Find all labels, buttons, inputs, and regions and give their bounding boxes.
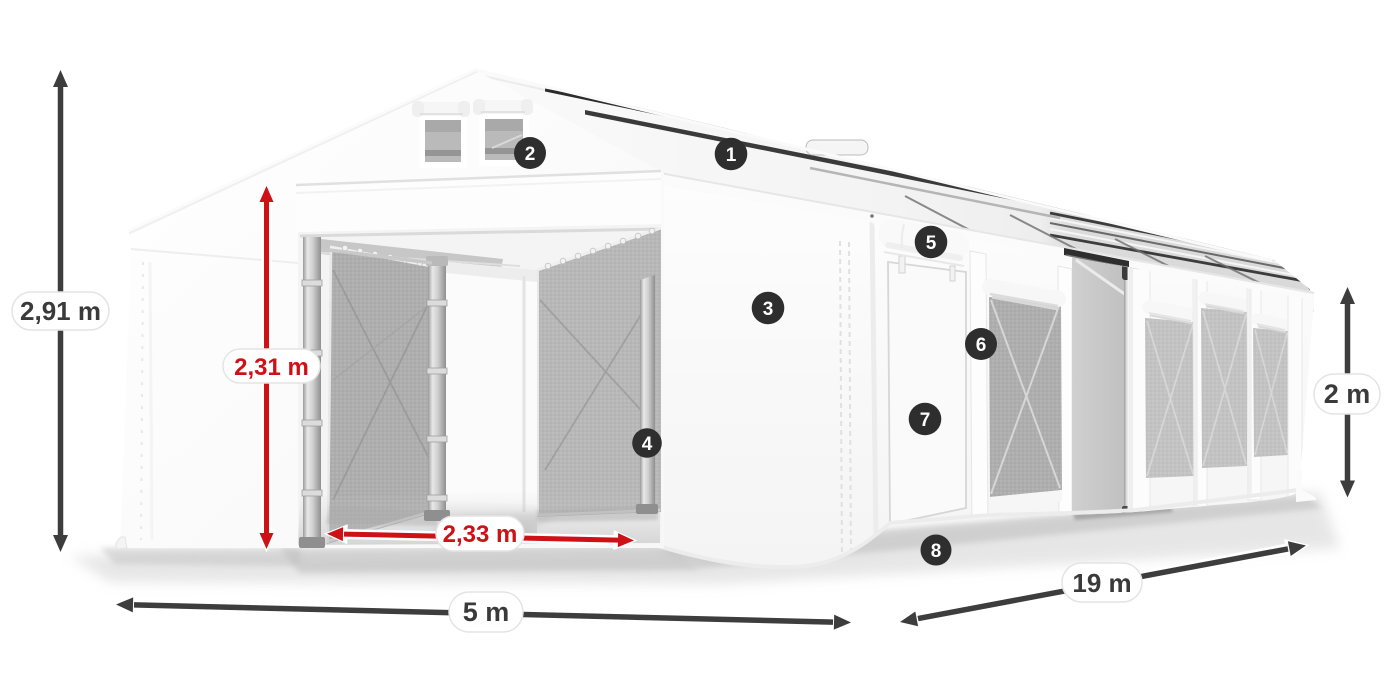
svg-text:2,31 m: 2,31 m <box>234 354 309 381</box>
svg-text:5: 5 <box>926 233 937 254</box>
svg-text:4: 4 <box>642 434 653 455</box>
svg-text:2,91 m: 2,91 m <box>20 296 101 326</box>
svg-text:2,33 m: 2,33 m <box>443 521 518 548</box>
svg-text:1: 1 <box>726 145 737 166</box>
svg-text:2: 2 <box>525 144 536 165</box>
svg-text:6: 6 <box>976 335 987 356</box>
svg-text:5 m: 5 m <box>463 597 510 627</box>
svg-text:19 m: 19 m <box>1072 568 1131 598</box>
svg-text:3: 3 <box>763 299 774 320</box>
svg-text:7: 7 <box>920 410 931 431</box>
svg-text:8: 8 <box>931 541 942 562</box>
svg-text:2 m: 2 m <box>1324 379 1371 409</box>
